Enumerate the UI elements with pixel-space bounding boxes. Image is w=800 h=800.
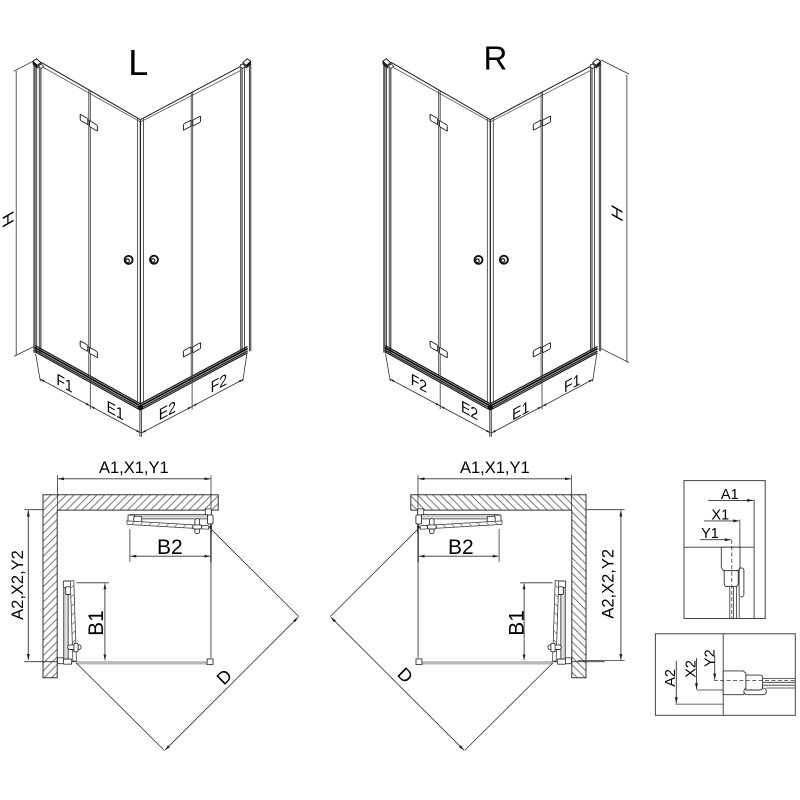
svg-text:H: H — [0, 208, 17, 231]
svg-text:A2,X2,Y2: A2,X2,Y2 — [9, 550, 27, 620]
svg-text:R: R — [483, 40, 507, 77]
svg-text:F2: F2 — [211, 371, 228, 397]
svg-text:F2: F2 — [411, 371, 427, 397]
svg-text:A1: A1 — [721, 487, 739, 503]
svg-text:L: L — [128, 42, 148, 83]
svg-text:A1,X1,Y1: A1,X1,Y1 — [99, 459, 169, 477]
svg-text:F1: F1 — [56, 371, 72, 397]
svg-text:B1: B1 — [506, 610, 529, 636]
svg-text:Y2: Y2 — [702, 649, 718, 667]
svg-text:X1: X1 — [711, 507, 729, 523]
svg-text:A2: A2 — [663, 669, 679, 687]
svg-text:B2: B2 — [157, 536, 183, 559]
svg-text:B2: B2 — [448, 536, 474, 559]
svg-text:X2: X2 — [684, 660, 700, 678]
svg-text:F1: F1 — [564, 371, 581, 397]
svg-text:E2: E2 — [159, 398, 176, 424]
svg-text:H: H — [609, 202, 626, 225]
svg-text:E1: E1 — [107, 398, 124, 425]
svg-text:A1,X1,Y1: A1,X1,Y1 — [460, 459, 530, 477]
svg-text:B1: B1 — [85, 610, 108, 636]
svg-text:A2,X2,Y2: A2,X2,Y2 — [600, 549, 618, 619]
svg-text:D: D — [213, 665, 236, 688]
svg-text:E1: E1 — [512, 398, 529, 424]
svg-text:Y1: Y1 — [701, 526, 719, 542]
